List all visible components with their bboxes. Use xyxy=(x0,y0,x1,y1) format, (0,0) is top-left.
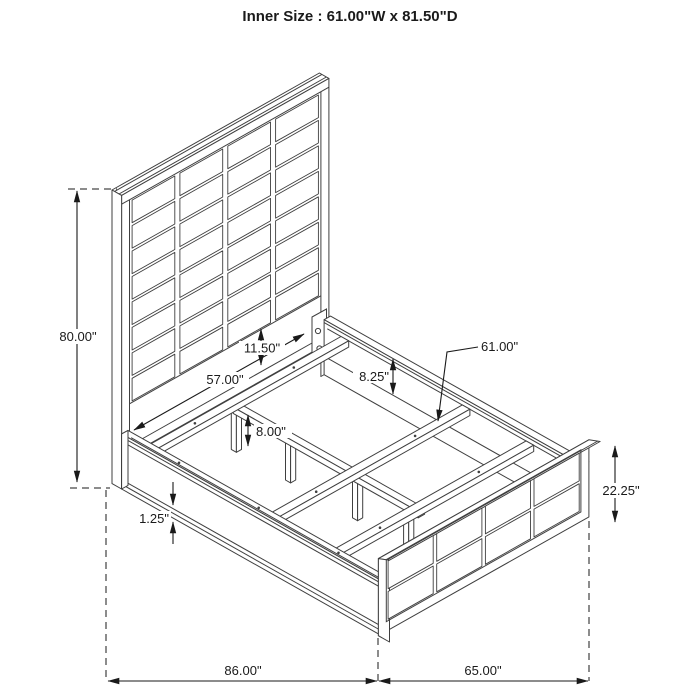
rail-screw xyxy=(257,507,260,510)
support-leg xyxy=(353,480,358,521)
slat-screw xyxy=(194,422,197,425)
rail-screw xyxy=(337,552,340,555)
dim-label-overall-length: 86.00" xyxy=(224,663,262,678)
slat-screw xyxy=(379,526,382,529)
rail-screw xyxy=(178,462,181,465)
dim-label-slat-length: 61.00" xyxy=(481,339,519,354)
support-leg xyxy=(286,442,291,483)
side-rail-end xyxy=(122,430,128,489)
dim-label-headboard-height: 80.00" xyxy=(59,329,97,344)
bed-dimension-diagram: 80.00" 57.00" 11.50" 8.25" 61.00" 8.00" … xyxy=(0,0,700,700)
dim-label-footboard-height: 22.25" xyxy=(602,483,640,498)
page-title: Inner Size : 61.00"W x 81.50"D xyxy=(242,8,457,25)
dim-label-side-rail-depth: 8.25" xyxy=(359,369,389,384)
slat-screw xyxy=(414,435,417,438)
support-leg xyxy=(231,411,236,452)
slat-screw xyxy=(478,471,481,474)
bed-line-drawing xyxy=(112,73,600,642)
dim-label-rail-inner-length: 57.00" xyxy=(206,372,244,387)
dim-label-rail-trim: 1.25" xyxy=(139,511,169,526)
cross-slat xyxy=(275,409,470,525)
slat-screw xyxy=(293,366,296,369)
headboard-left-post xyxy=(112,190,122,489)
slat-screw xyxy=(315,490,318,493)
bed-dimension-diagram-page: 80.00" 57.00" 11.50" 8.25" 61.00" 8.00" … xyxy=(0,0,700,700)
dim-label-headboard-rail-gap: 11.50" xyxy=(244,341,281,356)
dim-label-footboard-width: 65.00" xyxy=(464,663,502,678)
dim-label-leg-height: 8.00" xyxy=(256,424,286,439)
bracket-hole xyxy=(315,328,320,333)
